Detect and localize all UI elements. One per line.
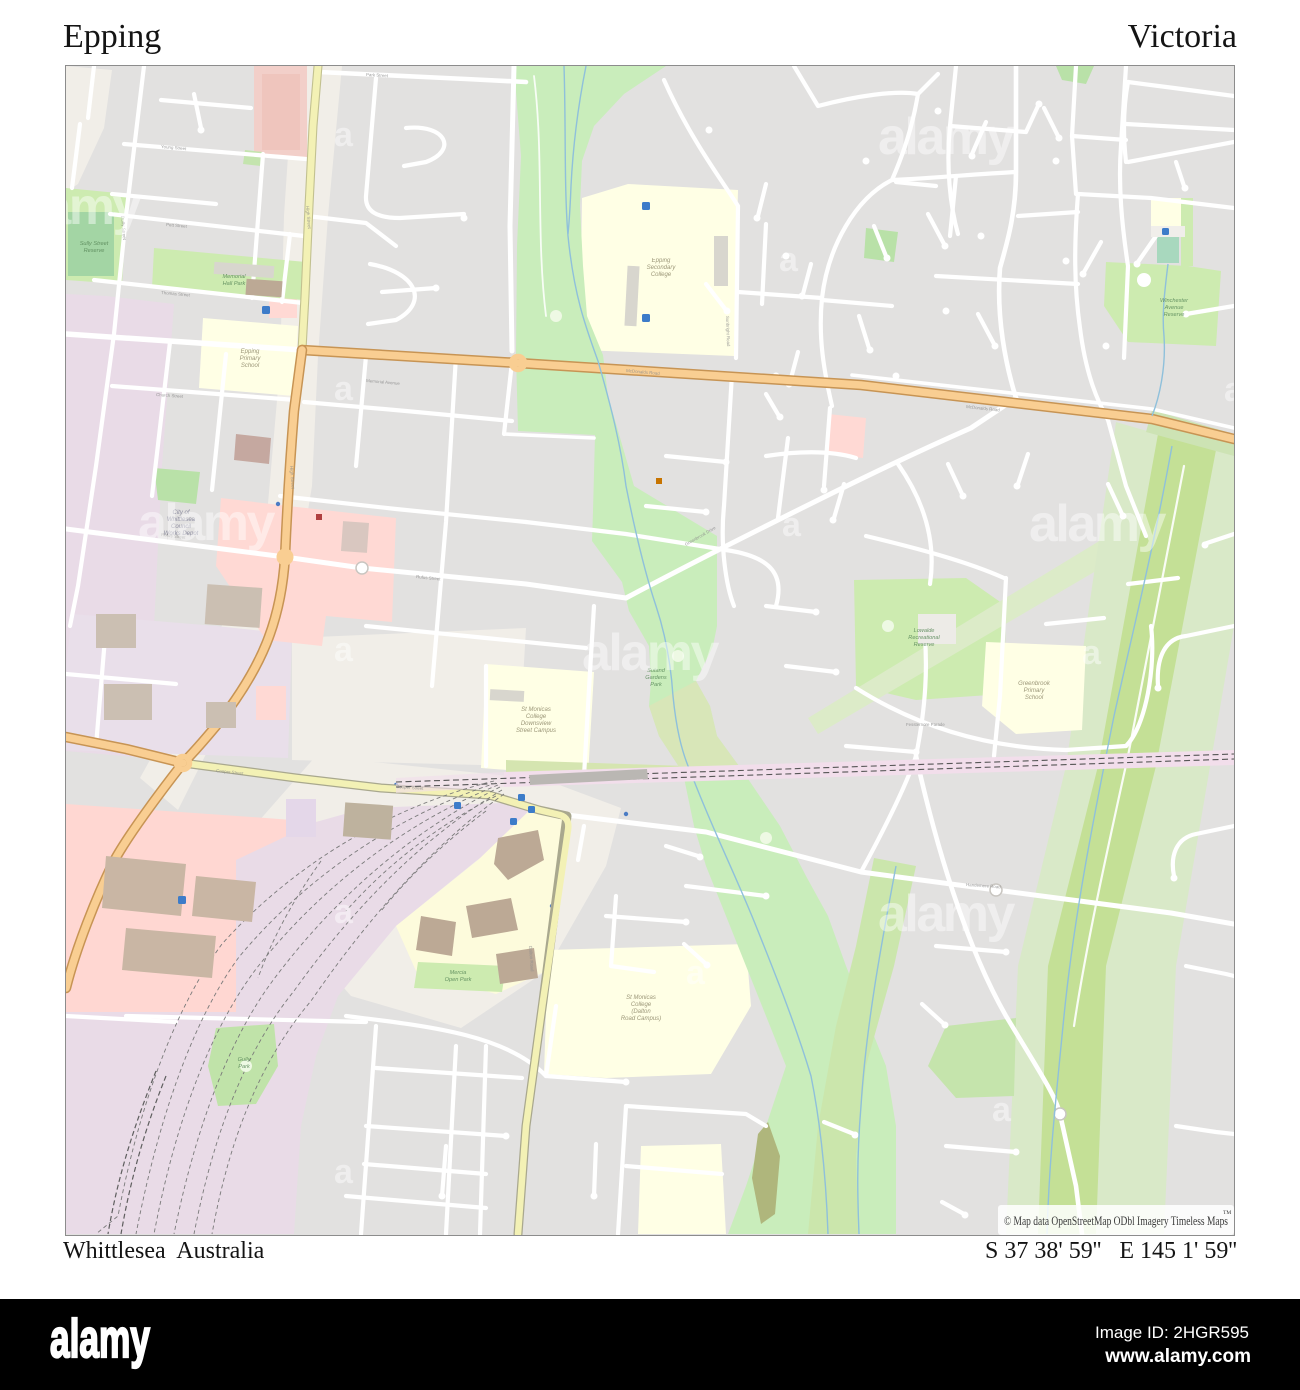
svg-text:College: College	[651, 272, 672, 278]
svg-text:St Monicas: St Monicas	[521, 707, 551, 713]
svg-text:Lowalde: Lowalde	[914, 628, 935, 634]
svg-text:a: a	[1224, 371, 1234, 409]
svg-text:Open Park: Open Park	[445, 977, 473, 983]
svg-text:Reserve: Reserve	[84, 248, 105, 254]
svg-text:a: a	[782, 506, 802, 544]
svg-text:a: a	[334, 631, 354, 669]
svg-text:Gully: Gully	[238, 1057, 252, 1063]
svg-text:Street Campus: Street Campus	[516, 728, 556, 734]
svg-text:College: College	[526, 714, 547, 720]
svg-text:a: a	[1082, 634, 1102, 672]
svg-text:Recreational: Recreational	[908, 635, 940, 641]
svg-text:Road Campus): Road Campus)	[621, 1016, 661, 1022]
svg-text:Winchester: Winchester	[1160, 298, 1189, 304]
svg-text:Hall Park: Hall Park	[223, 281, 247, 287]
svg-text:St Monicas: St Monicas	[626, 995, 656, 1001]
svg-text:Sully Street: Sully Street	[80, 241, 109, 247]
svg-text:Primary: Primary	[1024, 688, 1046, 694]
svg-text:Primary: Primary	[240, 356, 262, 362]
svg-text:a: a	[686, 954, 706, 992]
svg-text:Greenbrook: Greenbrook	[1018, 681, 1051, 687]
svg-text:a: a	[779, 241, 799, 279]
svg-text:alamy: alamy	[1029, 495, 1167, 553]
svg-text:Reserve: Reserve	[1164, 312, 1185, 318]
svg-text:a: a	[334, 893, 354, 931]
svg-text:School: School	[1025, 695, 1044, 701]
svg-text:School: School	[241, 363, 260, 369]
svg-text:a: a	[334, 370, 354, 408]
svg-text:alamy: alamy	[582, 624, 720, 682]
svg-text:College: College	[631, 1002, 652, 1008]
svg-text:Reserve: Reserve	[914, 642, 935, 648]
svg-text:Memorial: Memorial	[222, 274, 246, 280]
svg-text:Avenue: Avenue	[1164, 305, 1184, 311]
svg-text:TM: TM	[1223, 1210, 1231, 1216]
svg-text:alamy: alamy	[878, 108, 1016, 166]
svg-text:alamy: alamy	[50, 1315, 150, 1369]
svg-text:Downsview: Downsview	[521, 721, 552, 727]
svg-text:Park: Park	[238, 1064, 251, 1070]
svg-text:(Dalton: (Dalton	[631, 1009, 651, 1015]
svg-text:Epping: Epping	[241, 349, 260, 355]
svg-text:© Map data OpenStreetMap ODbl: © Map data OpenStreetMap ODbl Imagery Ti…	[1004, 1214, 1228, 1228]
svg-text:a: a	[334, 1153, 354, 1191]
svg-text:alamy: alamy	[66, 178, 142, 236]
svg-text:alamy: alamy	[138, 494, 276, 552]
svg-text:alamy: alamy	[878, 885, 1016, 943]
svg-text:Mercia: Mercia	[450, 970, 467, 976]
svg-text:Secondary: Secondary	[647, 265, 677, 271]
svg-text:a: a	[334, 116, 354, 154]
svg-text:Fessternore Parade: Fessternore Parade	[906, 722, 945, 727]
svg-text:a: a	[992, 1091, 1012, 1129]
svg-text:Epping: Epping	[652, 258, 671, 264]
svg-text:Park: Park	[650, 682, 663, 688]
